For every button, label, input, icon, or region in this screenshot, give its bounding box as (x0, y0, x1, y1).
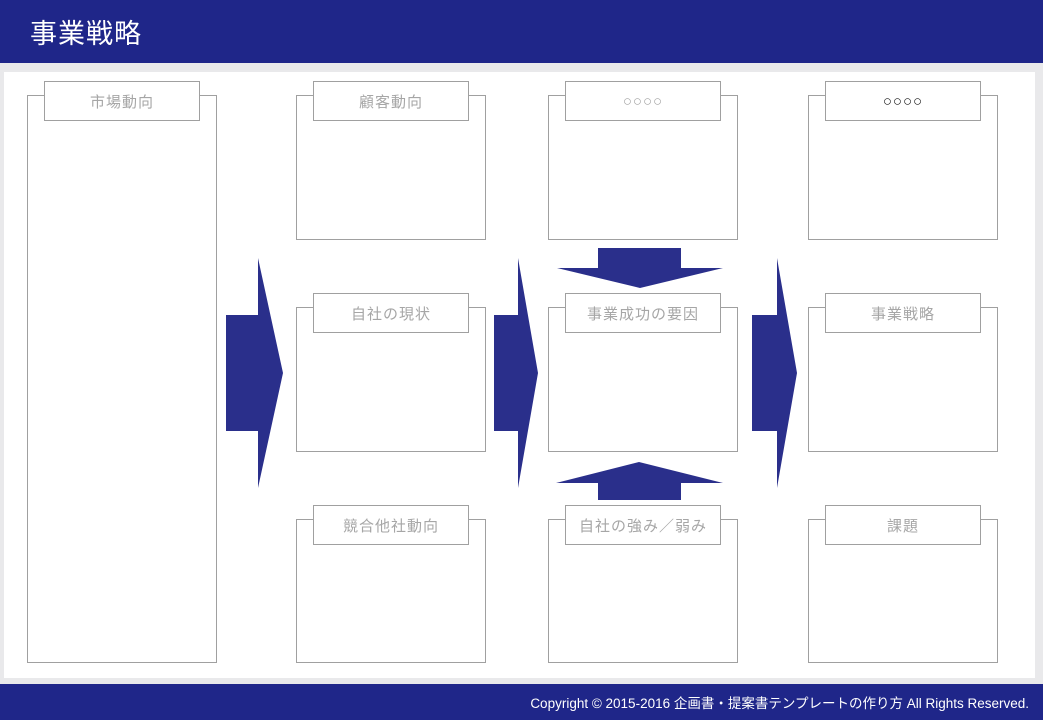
competitor-trends-title: 競合他社動向 (313, 505, 469, 545)
slide-canvas: 事業戦略 市場動向 顧客動向 自社の現状 競合他社動向 ○○○○ 事業成功の要因… (0, 0, 1043, 720)
placeholder-dark-title: ○○○○ (825, 81, 981, 121)
right-arrow-icon (494, 258, 538, 488)
up-arrow-icon (556, 462, 723, 500)
placeholder-gray-title: ○○○○ (565, 81, 721, 121)
issues-title: 課題 (825, 505, 981, 545)
right-arrow-icon (752, 258, 797, 488)
company-current-state-title: 自社の現状 (313, 293, 469, 333)
footer-bar: Copyright © 2015-2016 企画書・提案書テンプレートの作り方 … (0, 684, 1043, 720)
page-title: 事業戦略 (30, 12, 142, 51)
strengths-weaknesses-title: 自社の強み／弱み (565, 505, 721, 545)
header-bar: 事業戦略 (0, 0, 1043, 63)
business-success-factors-title: 事業成功の要因 (565, 293, 721, 333)
right-arrow-icon (226, 258, 283, 488)
customer-trends-title: 顧客動向 (313, 81, 469, 121)
market-trends-title: 市場動向 (44, 81, 200, 121)
business-strategy-title: 事業戦略 (825, 293, 981, 333)
market-trends-box (27, 95, 217, 663)
down-arrow-icon (557, 248, 723, 288)
copyright-text: Copyright © 2015-2016 企画書・提案書テンプレートの作り方 … (530, 692, 1029, 712)
